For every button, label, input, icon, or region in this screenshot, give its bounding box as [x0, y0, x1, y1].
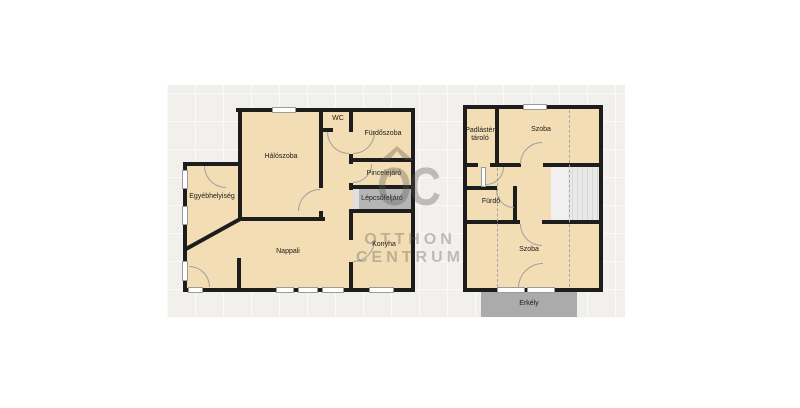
wall — [349, 108, 353, 132]
wall — [542, 220, 603, 224]
room-label-pincelejaro: Pincelejáró — [367, 170, 402, 178]
wall — [411, 108, 415, 292]
room-label-egyebhelyiseg: Egyébhelyiség — [189, 193, 235, 201]
window — [276, 287, 294, 293]
entry-door-sill — [188, 287, 203, 293]
window — [182, 261, 188, 281]
wall — [463, 186, 497, 190]
wall — [319, 108, 323, 188]
wall — [237, 258, 241, 288]
room-label-lepcsofeljaro: Lépcsőfeljáró — [361, 195, 403, 203]
room-label-nappali: Nappali — [276, 248, 300, 256]
slope-dashed-line — [569, 110, 570, 287]
wall — [463, 163, 478, 167]
floorplan-image: WC Fürdőszoba Hálószoba Pincelejáró Lépc… — [0, 0, 800, 408]
slope-dashed-line — [497, 168, 498, 287]
room-label-furdoszoba: Fürdőszoba — [365, 130, 402, 138]
window — [369, 287, 394, 293]
wall — [319, 211, 323, 221]
wall — [543, 163, 603, 167]
wall — [349, 210, 353, 240]
wall — [599, 105, 603, 292]
room-label-szoba-also: Szoba — [519, 246, 539, 254]
wall — [238, 217, 325, 221]
room-label-padlaster-tarolo: Padlástér tároló — [458, 127, 502, 143]
wall — [349, 185, 415, 189]
room-label-furdo: Fürdő — [482, 198, 500, 206]
window — [322, 287, 344, 293]
room-label-wc: WC — [332, 115, 344, 123]
wall — [236, 108, 415, 112]
wall — [238, 108, 242, 221]
wall — [349, 158, 415, 162]
window — [523, 104, 547, 110]
window — [298, 287, 318, 293]
room-label-szoba-felso: Szoba — [531, 126, 551, 134]
window — [182, 170, 188, 189]
room-label-erkely: Erkély — [519, 300, 538, 308]
window — [272, 107, 296, 113]
window — [182, 206, 188, 225]
stairs-steps — [568, 167, 599, 220]
room-label-haloszoba: Hálószoba — [264, 153, 297, 161]
room-label-konyha: Konyha — [372, 241, 396, 249]
wall — [349, 262, 353, 292]
wall — [463, 220, 520, 224]
wall — [349, 209, 415, 213]
stairs-landing — [551, 167, 568, 220]
